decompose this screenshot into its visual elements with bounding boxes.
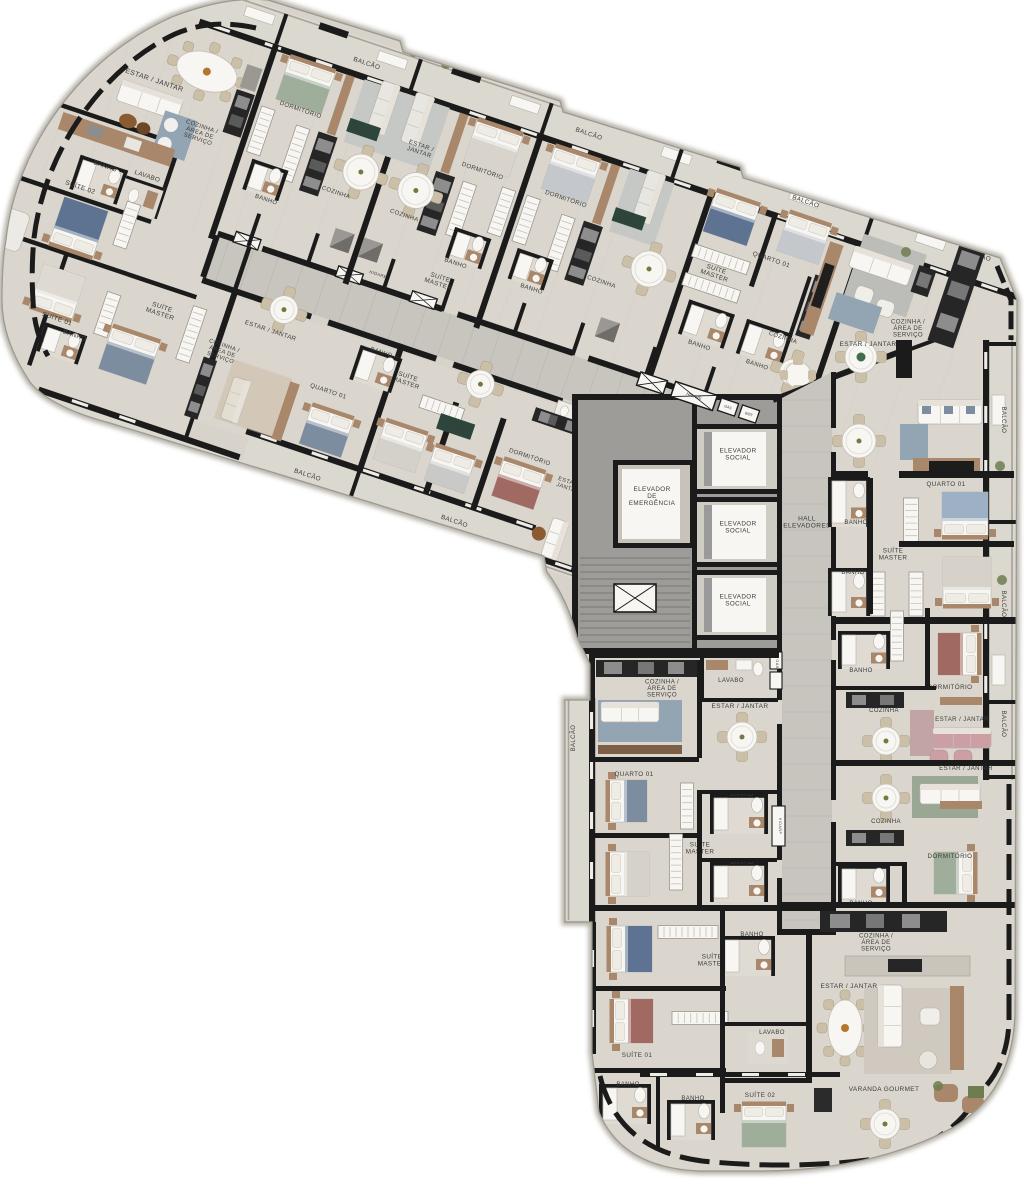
svg-text:BALCÃO: BALCÃO <box>1000 711 1007 738</box>
svg-text:COZINHA: COZINHA <box>871 819 901 825</box>
svg-text:GÁS: GÁS <box>775 659 779 668</box>
svg-text:ESTAR / JANTAR: ESTAR / JANTAR <box>839 341 896 348</box>
svg-text:QUARTO 01: QUARTO 01 <box>614 771 653 778</box>
svg-text:VARANDA GOURMET: VARANDA GOURMET <box>849 1086 920 1093</box>
svg-text:ESTAR / JANTAR: ESTAR / JANTAR <box>935 716 989 723</box>
svg-text:BANHO: BANHO <box>740 932 763 938</box>
svg-text:BALCÃO: BALCÃO <box>570 725 577 752</box>
svg-text:COZINHA /ÁREA DESERVIÇO: COZINHA /ÁREA DESERVIÇO <box>859 932 893 952</box>
svg-text:BANHO: BANHO <box>681 1096 704 1102</box>
svg-text:LAVABO: LAVABO <box>718 677 744 684</box>
svg-text:SUÍTE 01: SUÍTE 01 <box>622 1050 653 1059</box>
svg-text:ESTAR / JANTAR: ESTAR / JANTAR <box>711 703 768 710</box>
svg-text:COZINHA: COZINHA <box>869 708 899 714</box>
svg-text:BALCÃO: BALCÃO <box>1000 591 1007 618</box>
svg-text:BANHO: BANHO <box>849 668 872 674</box>
svg-text:HIDARP: HIDARP <box>778 818 782 835</box>
svg-text:SUÍTE 02: SUÍTE 02 <box>745 1090 776 1099</box>
svg-text:QUARTO 01: QUARTO 01 <box>926 481 965 488</box>
svg-text:BANHO: BANHO <box>841 570 864 576</box>
svg-text:ESTAR / JANTAR: ESTAR / JANTAR <box>939 765 993 772</box>
svg-text:COZINHA /ÁREA DESERVIÇO: COZINHA /ÁREA DESERVIÇO <box>891 318 925 338</box>
svg-text:COZINHA /ÁREA DESERVIÇO: COZINHA /ÁREA DESERVIÇO <box>645 678 679 698</box>
svg-text:BANHO: BANHO <box>616 1082 639 1088</box>
svg-text:DORMITÓRIO: DORMITÓRIO <box>928 851 973 860</box>
svg-text:BANHO: BANHO <box>844 520 867 526</box>
svg-text:BALCÃO: BALCÃO <box>1000 407 1007 434</box>
svg-text:SUÍTEMASTER: SUÍTEMASTER <box>879 546 908 562</box>
svg-text:LAVABO: LAVABO <box>759 1029 785 1036</box>
